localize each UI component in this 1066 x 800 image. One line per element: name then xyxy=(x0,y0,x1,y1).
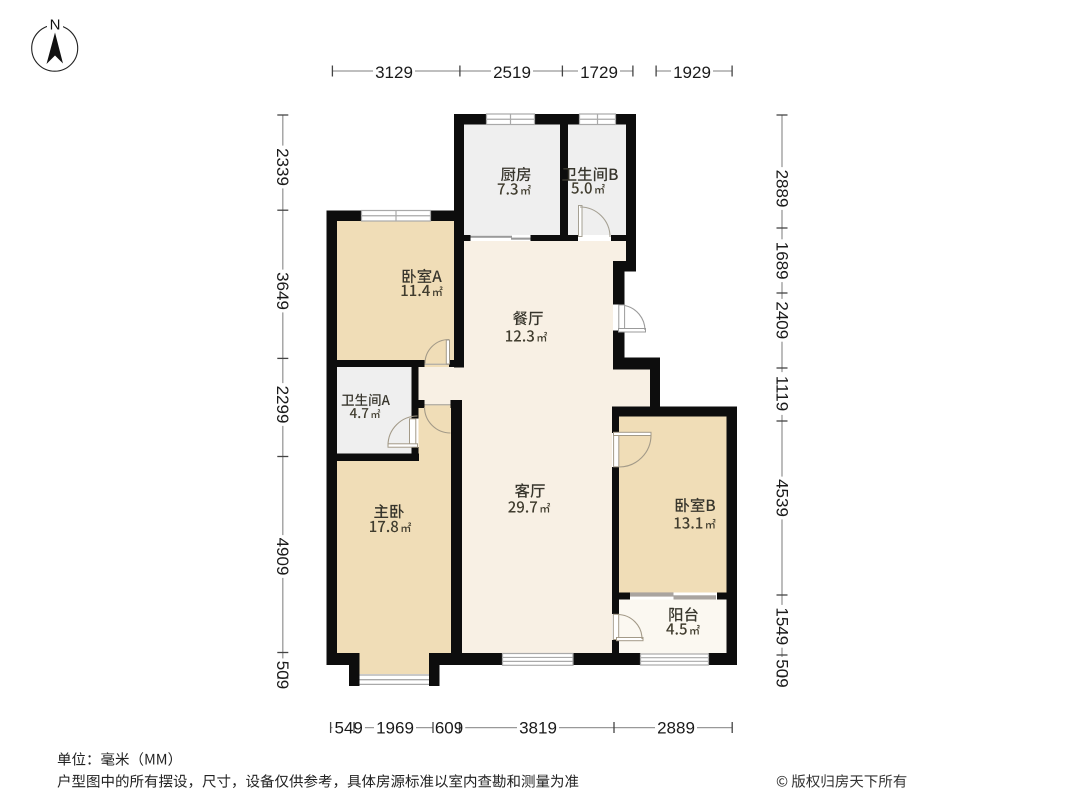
svg-text:1549: 1549 xyxy=(772,607,791,645)
svg-text:1729: 1729 xyxy=(580,63,618,82)
svg-text:509: 509 xyxy=(273,661,292,689)
svg-text:4539: 4539 xyxy=(772,479,791,517)
svg-text:2519: 2519 xyxy=(493,63,531,82)
svg-text:2889: 2889 xyxy=(657,719,695,738)
svg-text:2889: 2889 xyxy=(772,170,791,208)
svg-text:549: 549 xyxy=(335,719,363,738)
svg-text:3649: 3649 xyxy=(273,272,292,310)
svg-text:509: 509 xyxy=(772,659,791,687)
svg-text:2299: 2299 xyxy=(273,386,292,424)
svg-text:609: 609 xyxy=(435,719,463,738)
svg-text:2339: 2339 xyxy=(273,148,292,186)
svg-text:1689: 1689 xyxy=(772,242,791,280)
svg-text:3129: 3129 xyxy=(375,63,413,82)
svg-text:1119: 1119 xyxy=(772,376,791,411)
svg-text:4909: 4909 xyxy=(273,538,292,576)
svg-text:3819: 3819 xyxy=(519,719,557,738)
svg-text:1969: 1969 xyxy=(376,719,414,738)
svg-text:2409: 2409 xyxy=(772,301,791,339)
svg-text:1929: 1929 xyxy=(673,63,711,82)
svg-text:N: N xyxy=(50,17,61,34)
